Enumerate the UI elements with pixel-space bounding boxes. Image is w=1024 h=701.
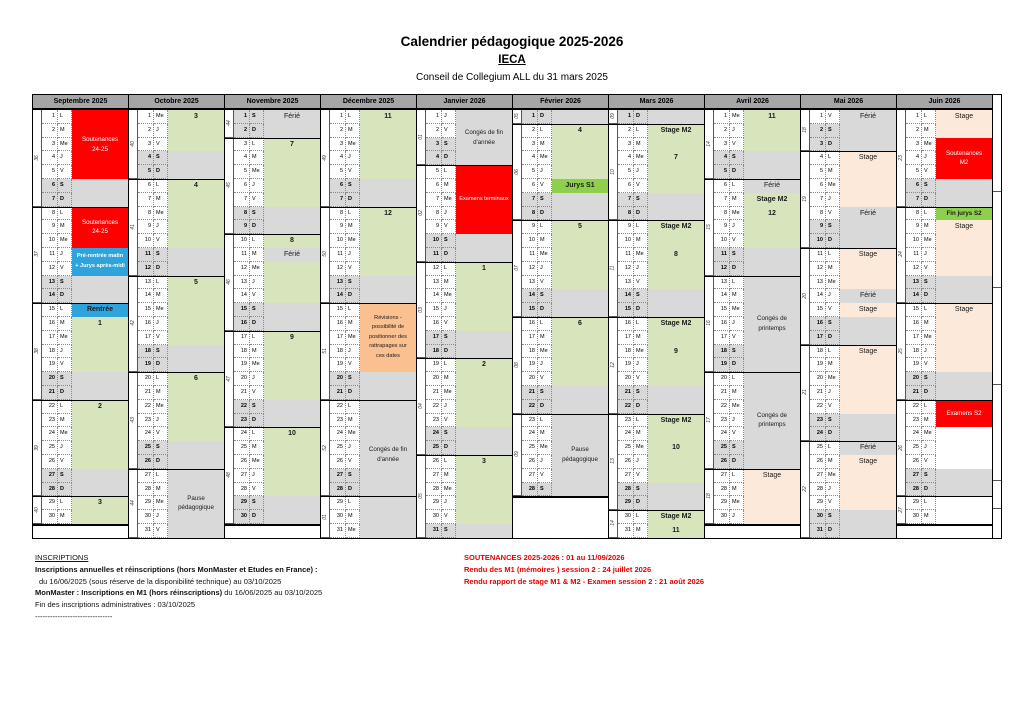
day-cell-letter: D <box>538 207 552 221</box>
day-cell-letter: Me <box>634 345 648 359</box>
week-separator <box>705 372 800 373</box>
weekend-shade <box>648 483 704 497</box>
week-separator <box>609 510 704 511</box>
day-cell-number: 3 <box>714 138 730 152</box>
day-cell-letter: J <box>154 414 168 428</box>
day-cell-number: 29 <box>234 496 250 510</box>
weekend-shade <box>840 510 896 524</box>
week-separator <box>897 207 992 208</box>
week-separator <box>129 469 224 470</box>
event-label: Stage M2 9 <box>648 317 704 358</box>
day-cell-letter: D <box>730 262 744 276</box>
week-number: 27 <box>898 507 904 513</box>
day-cell-letter: Me <box>154 207 168 221</box>
day-cell-number: 29 <box>426 496 442 510</box>
week-band: 07 <box>513 220 521 317</box>
week-band: 51 <box>321 303 329 400</box>
day-cell-letter: V <box>250 193 264 207</box>
day-cell-number: 21 <box>906 386 922 400</box>
day-cell-number: 1 <box>138 110 154 124</box>
event-label: 7 <box>264 138 320 152</box>
day-cell-letter: V <box>826 496 840 510</box>
day-cell-number: 17 <box>330 331 346 345</box>
day-cell-letter: J <box>826 483 840 497</box>
page-subtitle: IECA <box>0 54 1024 66</box>
day-cell-letter: V <box>442 510 456 524</box>
day-cell-number: 18 <box>618 345 634 359</box>
day-cell-number: 29 <box>330 496 346 510</box>
day-cell-letter: J <box>58 248 72 262</box>
day-cell-letter: V <box>730 427 744 441</box>
day-cell-letter: V <box>922 455 936 469</box>
event-block: 5 <box>552 220 608 289</box>
weekend-shade <box>168 248 224 262</box>
week-band: 37 <box>33 207 41 304</box>
week-band: 52 <box>321 400 329 497</box>
footer-right: SOUTENANCES 2025-2026 : 01 au 11/09/2026… <box>464 552 704 587</box>
event-block: 10 <box>264 427 320 496</box>
day-cell-number: 27 <box>42 469 58 483</box>
day-cell-number: 7 <box>42 193 58 207</box>
month-body: 0506070809123456789101112131415161718192… <box>513 110 608 538</box>
day-cell-number: 18 <box>234 345 250 359</box>
day-cell-letter: Me <box>346 427 360 441</box>
inscriptions-line3: MonMaster : Inscriptions en M1 (hors réi… <box>35 587 322 599</box>
event-label: Congés de printemps <box>744 411 800 430</box>
day-cell-number: 27 <box>618 469 634 483</box>
event-column: 4Jurys S156Pause pédagogique <box>552 110 608 538</box>
day-cell-number: 26 <box>714 455 730 469</box>
event-label: Soutenances 24-25 <box>72 135 128 154</box>
day-cell-number: 10 <box>234 234 250 248</box>
day-cell-number: 12 <box>138 262 154 276</box>
weekend-shade <box>552 400 608 414</box>
day-cell-number: 11 <box>138 248 154 262</box>
day-cell-number: 31 <box>618 524 634 538</box>
day-cell-letter: S <box>634 386 648 400</box>
day-cell-number: 26 <box>330 455 346 469</box>
day-cell-letter: V <box>538 276 552 290</box>
day-cell-letter: M <box>442 179 456 193</box>
event-column: FériéStageFériéStageFériéStageStageFérié… <box>840 110 896 538</box>
day-cell-number: 2 <box>714 124 730 138</box>
week-number: 39 <box>34 445 40 451</box>
week-separator <box>129 179 224 180</box>
month-column-1: Septembre 202536373839401234567891011121… <box>33 95 129 538</box>
day-cell-number: 31 <box>426 524 442 538</box>
weekend-shade <box>264 220 320 234</box>
day-cell-letter: M <box>250 441 264 455</box>
event-label: 10 <box>264 427 320 441</box>
day-cell-number: 13 <box>138 276 154 290</box>
week-separator <box>513 414 608 415</box>
event-block: Soutenances 24-25 <box>72 110 128 179</box>
day-cell-letter: L <box>346 496 360 510</box>
day-cell-number: 17 <box>810 331 826 345</box>
event-label: 3 <box>168 110 224 124</box>
day-cell-letter: L <box>346 110 360 124</box>
day-cell-number: 18 <box>906 345 922 359</box>
event-block: 7 <box>264 138 320 207</box>
day-cell-number: 26 <box>810 455 826 469</box>
week-strip: 1819202122 <box>801 110 810 538</box>
day-cell-number: 19 <box>426 358 442 372</box>
day-cell-letter: D <box>346 386 360 400</box>
day-cell-number: 18 <box>714 345 730 359</box>
day-cell-letter: S <box>250 303 264 317</box>
day-cell-letter: V <box>346 358 360 372</box>
day-cell-number: 25 <box>522 441 538 455</box>
day-cell-number: 17 <box>522 331 538 345</box>
weekend-shade <box>744 165 800 179</box>
day-cell-number: 13 <box>234 276 250 290</box>
day-cell-letter: Me <box>730 110 744 124</box>
week-separator <box>801 441 896 442</box>
day-cell-letter: Me <box>346 524 360 538</box>
day-cell-number: 13 <box>618 276 634 290</box>
month-body: 4041424344123456789101112131415161718192… <box>129 110 224 538</box>
day-cell-letter: L <box>634 317 648 331</box>
event-label: Stage M2 12 <box>744 193 800 221</box>
weekend-shade <box>264 496 320 510</box>
week-band: 05 <box>417 455 425 538</box>
day-cell-number: 27 <box>330 469 346 483</box>
week-band: 19 <box>801 151 809 248</box>
day-cell-letter: L <box>826 441 840 455</box>
day-cell-number: 28 <box>618 483 634 497</box>
day-number-column: 1234567891011121314151617181920212223242… <box>810 110 826 538</box>
day-cell-letter: V <box>58 455 72 469</box>
day-cell-letter: J <box>250 469 264 483</box>
day-cell-number: 20 <box>234 372 250 386</box>
month-body: 0910111213141234567891011121314151617181… <box>609 110 704 538</box>
day-cell-letter: V <box>826 207 840 221</box>
day-cell-letter: L <box>826 345 840 359</box>
week-separator <box>321 400 416 401</box>
weekend-shade <box>648 496 704 510</box>
day-cell-number: 16 <box>618 317 634 331</box>
event-label: Stage <box>840 345 896 359</box>
day-cell-number: 25 <box>42 441 58 455</box>
day-cell-letter: J <box>538 262 552 276</box>
weekend-shade <box>360 276 416 290</box>
day-cell-number: 17 <box>714 331 730 345</box>
day-cell-letter: Me <box>826 469 840 483</box>
event-column: Férié78Férié910 <box>264 110 320 538</box>
week-strip: 0506070809 <box>513 110 522 496</box>
week-number: 04 <box>418 403 424 409</box>
day-cell-number: 6 <box>234 179 250 193</box>
day-number-column: 1234567891011121314151617181920212223242… <box>714 110 730 524</box>
day-cell-number: 9 <box>906 220 922 234</box>
event-block: Stage <box>744 469 800 524</box>
day-cell-number: 14 <box>522 289 538 303</box>
weekend-shade <box>264 303 320 317</box>
weekend-shade <box>72 469 128 483</box>
day-cell-number: 16 <box>138 317 154 331</box>
day-cell-number: 29 <box>42 496 58 510</box>
event-label: Soutenances 24-25 <box>72 218 128 237</box>
week-band: 17 <box>705 372 713 469</box>
day-cell-number: 21 <box>330 386 346 400</box>
event-label: Stage <box>744 469 800 483</box>
day-cell-letter: Me <box>154 303 168 317</box>
week-band: 09 <box>513 414 521 497</box>
month-header: Septembre 2025 <box>33 95 128 110</box>
day-cell-number: 4 <box>426 151 442 165</box>
day-cell-letter: S <box>538 483 552 497</box>
day-cell-number: 15 <box>810 303 826 317</box>
day-cell-letter: S <box>58 179 72 193</box>
day-number-column: 1234567891011121314151617181920212223242… <box>138 110 154 538</box>
day-cell-number: 24 <box>522 427 538 441</box>
day-cell-letter: M <box>634 524 648 538</box>
event-block: Férié <box>840 441 896 455</box>
weekend-shade <box>168 151 224 165</box>
week-number: 10 <box>610 169 616 175</box>
day-cell-number: 1 <box>906 110 922 124</box>
week-band: 14 <box>609 510 617 538</box>
day-cell-number: 9 <box>42 220 58 234</box>
day-cell-number: 19 <box>522 358 538 372</box>
day-cell-letter: V <box>730 138 744 152</box>
soutenances-line1: SOUTENANCES 2025-2026 : 01 au 11/09/2026 <box>464 552 704 564</box>
weekend-shade <box>168 262 224 276</box>
event-column: Soutenances 24-25Soutenances 24-25Pré-re… <box>72 110 128 538</box>
soutenances-line3: Rendu rapport de stage M1 & M2 - Examen … <box>464 576 704 588</box>
day-cell-letter: M <box>346 510 360 524</box>
day-cell-number: 24 <box>714 427 730 441</box>
event-block: Stage <box>936 303 992 372</box>
event-block: Stage M2 10 <box>648 414 704 483</box>
week-band: 42 <box>129 276 137 373</box>
day-cell-letter: J <box>634 455 648 469</box>
weekend-shade <box>936 372 992 386</box>
day-cell-letter: V <box>922 358 936 372</box>
day-cell-number: 8 <box>138 207 154 221</box>
week-band: 16 <box>705 276 713 373</box>
week-number: 49 <box>322 155 328 161</box>
day-cell-number: 6 <box>618 179 634 193</box>
day-cell-letter: Me <box>58 234 72 248</box>
day-cell-number: 2 <box>906 124 922 138</box>
day-cell-number: 1 <box>714 110 730 124</box>
day-cell-number: 3 <box>522 138 538 152</box>
day-cell-letter: J <box>154 124 168 138</box>
day-cell-number: 9 <box>618 220 634 234</box>
day-cell-letter: Me <box>58 138 72 152</box>
weekend-shade <box>648 303 704 317</box>
day-cell-number: 12 <box>426 262 442 276</box>
day-cell-number: 13 <box>330 276 346 290</box>
day-cell-number: 14 <box>810 289 826 303</box>
day-cell-letter: J <box>730 317 744 331</box>
day-cell-number: 23 <box>330 414 346 428</box>
week-strip: 4950515201 <box>321 110 330 538</box>
event-label: Stage <box>936 220 992 234</box>
event-block: Stage M2 11 <box>648 510 704 538</box>
week-separator <box>33 496 128 497</box>
weekend-shade <box>648 386 704 400</box>
week-band: 20 <box>801 248 809 345</box>
week-strip: 1415161718 <box>705 110 714 524</box>
day-cell-number: 1 <box>810 110 826 124</box>
week-number: 52 <box>322 445 328 451</box>
day-cell-number: 8 <box>714 207 730 221</box>
week-number: 19 <box>802 196 808 202</box>
day-cell-letter: J <box>250 179 264 193</box>
day-cell-number: 22 <box>234 400 250 414</box>
week-number: 44 <box>226 121 232 127</box>
day-cell-letter: L <box>442 165 456 179</box>
day-cell-letter: M <box>634 427 648 441</box>
week-separator <box>417 165 512 166</box>
event-block: Soutenances M2 <box>936 138 992 179</box>
day-cell-number: 20 <box>618 372 634 386</box>
day-cell-number: 16 <box>906 317 922 331</box>
day-cell-letter: J <box>730 510 744 524</box>
day-letter-column: SDLMMeJVSDLMMeJVSDLMMeJVSDLMMeJVSD <box>250 110 264 524</box>
day-cell-letter: M <box>730 483 744 497</box>
day-cell-number: 11 <box>522 248 538 262</box>
day-cell-number: 7 <box>810 193 826 207</box>
weekend-shade <box>168 358 224 372</box>
day-cell-letter: L <box>634 414 648 428</box>
day-cell-number: 20 <box>714 372 730 386</box>
day-cell-letter: D <box>154 455 168 469</box>
week-separator <box>33 207 128 208</box>
day-cell-letter: V <box>826 400 840 414</box>
day-cell-number: 4 <box>618 151 634 165</box>
week-strip: 3637383940 <box>33 110 42 524</box>
day-cell-letter: L <box>250 331 264 345</box>
day-cell-number: 25 <box>234 441 250 455</box>
day-cell-letter: J <box>346 345 360 359</box>
day-cell-number: 4 <box>234 151 250 165</box>
event-label: Stage <box>840 248 896 262</box>
day-cell-number: 3 <box>330 138 346 152</box>
day-cell-number: 27 <box>810 469 826 483</box>
day-cell-number: 19 <box>234 358 250 372</box>
day-cell-letter: D <box>922 289 936 303</box>
day-cell-letter: S <box>442 331 456 345</box>
week-number: 12 <box>610 362 616 368</box>
day-cell-number: 28 <box>522 483 538 497</box>
week-strip: 091011121314 <box>609 110 618 538</box>
event-label: Pré-rentrée matin + Jurys après-midi <box>72 252 128 271</box>
event-block: 4 <box>552 124 608 179</box>
day-cell-letter: S <box>730 441 744 455</box>
day-cell-letter: V <box>250 289 264 303</box>
month-column-10: Juin 20262324252627123456789101112131415… <box>897 95 993 538</box>
month-header: Avril 2026 <box>705 95 800 110</box>
day-cell-letter: J <box>730 414 744 428</box>
weekend-shade <box>264 400 320 414</box>
day-letter-column: VSDLMMeJVSDLMMeJVSDLMMeJVSDLMMeJVSD <box>826 110 840 538</box>
day-cell-letter: V <box>250 483 264 497</box>
day-cell-letter: J <box>538 455 552 469</box>
day-number-column: 1234567891011121314151617181920212223242… <box>522 110 538 496</box>
day-cell-number: 17 <box>234 331 250 345</box>
day-cell-letter: D <box>154 262 168 276</box>
day-cell-number: 28 <box>906 483 922 497</box>
day-cell-number: 30 <box>138 510 154 524</box>
day-cell-letter: D <box>826 331 840 345</box>
day-cell-number: 31 <box>330 524 346 538</box>
event-block: 11 <box>744 110 800 151</box>
month-body: 0102030405123456789101112131415161718192… <box>417 110 512 538</box>
day-cell-number: 18 <box>138 345 154 359</box>
day-cell-number: 11 <box>714 248 730 262</box>
inscriptions-line1: Inscriptions annuelles et réinscriptions… <box>35 564 322 576</box>
day-cell-letter: S <box>922 372 936 386</box>
week-separator <box>897 400 992 401</box>
week-band <box>993 481 1001 509</box>
event-column: 1112Révisions - possibilité de positionn… <box>360 110 416 538</box>
day-cell-number: 21 <box>522 386 538 400</box>
inscriptions-line2: du 16/06/2025 (sous réserve de la dispon… <box>39 576 322 588</box>
day-cell-number: 7 <box>426 193 442 207</box>
day-cell-letter: J <box>922 345 936 359</box>
week-separator <box>225 427 320 428</box>
week-band: 27 <box>897 496 905 524</box>
day-cell-letter: Me <box>442 193 456 207</box>
day-cell-letter: M <box>730 193 744 207</box>
weekend-shade <box>552 110 608 124</box>
day-cell-number: 30 <box>714 510 730 524</box>
day-cell-number: 22 <box>810 400 826 414</box>
day-cell-number: 24 <box>330 427 346 441</box>
day-cell-letter: L <box>442 358 456 372</box>
week-separator <box>897 303 992 304</box>
day-cell-number: 8 <box>810 207 826 221</box>
week-separator <box>513 124 608 125</box>
event-label: 1 <box>456 262 512 276</box>
day-cell-number: 4 <box>522 151 538 165</box>
day-cell-letter: S <box>58 372 72 386</box>
event-label: Stage M2 10 <box>648 414 704 455</box>
day-cell-letter: S <box>250 400 264 414</box>
day-cell-number: 5 <box>426 165 442 179</box>
day-cell-letter: J <box>58 345 72 359</box>
event-block: Férié <box>840 207 896 248</box>
day-cell-number: 1 <box>522 110 538 124</box>
weekend-shade <box>456 524 512 538</box>
month-end-line <box>513 496 608 498</box>
day-cell-letter: D <box>250 317 264 331</box>
day-cell-number: 5 <box>522 165 538 179</box>
day-letter-column: LMMeJVSDLMMeJVSDLMMeJVSDLMMeJVSDLM <box>922 110 936 524</box>
day-cell-letter: M <box>346 317 360 331</box>
day-cell-number: 30 <box>618 510 634 524</box>
day-cell-number: 6 <box>330 179 346 193</box>
day-cell-letter: M <box>442 276 456 290</box>
day-cell-letter: S <box>346 469 360 483</box>
weekend-shade <box>648 289 704 303</box>
day-cell-letter: S <box>250 496 264 510</box>
day-cell-letter: S <box>730 151 744 165</box>
day-cell-letter: L <box>730 276 744 290</box>
event-block: Soutenances 24-25 <box>72 207 128 248</box>
day-cell-number: 29 <box>810 496 826 510</box>
day-cell-letter: L <box>58 303 72 317</box>
weekend-shade <box>264 317 320 331</box>
week-number: 14 <box>706 141 712 147</box>
day-cell-letter: S <box>538 386 552 400</box>
day-cell-number: 20 <box>906 372 922 386</box>
event-label: Stage <box>840 151 896 165</box>
day-cell-letter: J <box>250 276 264 290</box>
